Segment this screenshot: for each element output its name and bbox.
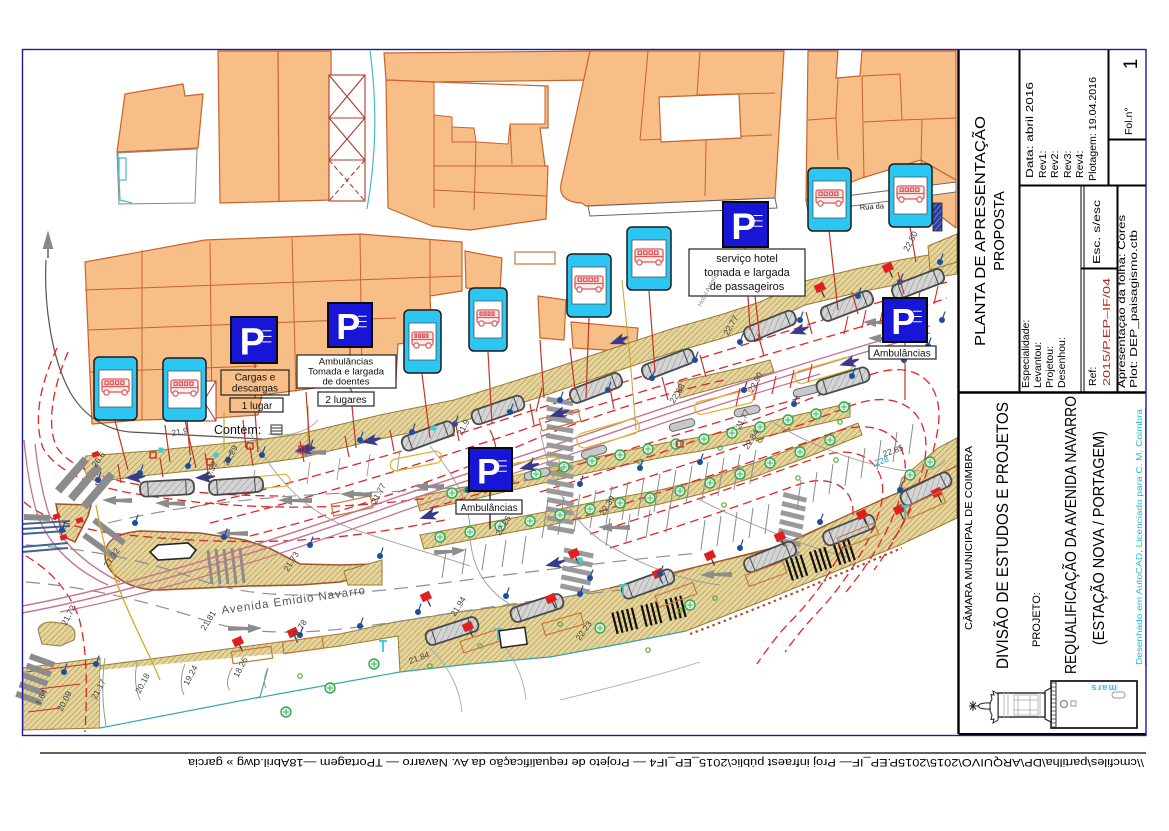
- svg-text:PLANTA DE APRESENTAÇÃO: PLANTA DE APRESENTAÇÃO: [972, 116, 989, 346]
- svg-text:de doentes: de doentes: [322, 377, 369, 388]
- svg-text:Esc. s/esc: Esc. s/esc: [1091, 200, 1103, 264]
- svg-text:Rev2:: Rev2:: [1049, 151, 1061, 178]
- svg-text:22.50: 22.50: [901, 229, 920, 253]
- svg-text:Ambulâncias: Ambulâncias: [460, 503, 517, 514]
- svg-text:Fol.n°: Fol.n°: [1123, 107, 1135, 135]
- svg-text:descargas: descargas: [232, 384, 278, 395]
- svg-text:Especialidade:: Especialidade:: [1020, 320, 1032, 388]
- svg-text:PROJETO:: PROJETO:: [1031, 592, 1043, 647]
- svg-text:1 lugar: 1 lugar: [242, 401, 273, 412]
- svg-text:DIVISÃO DE ESTUDOS E PROJETOS: DIVISÃO DE ESTUDOS E PROJETOS: [993, 402, 1012, 669]
- svg-text:PROPOSTA: PROPOSTA: [992, 191, 1008, 271]
- svg-text:Levantou:: Levantou:: [1032, 342, 1044, 388]
- svg-text:de passageiros: de passageiros: [710, 281, 785, 293]
- svg-text:P: P: [240, 321, 265, 363]
- svg-text:Contem:: Contem:: [214, 423, 261, 437]
- svg-text:Cargas e: Cargas e: [235, 373, 276, 384]
- svg-text:Data: abril 2016: Data: abril 2016: [1024, 82, 1036, 178]
- svg-text:CÂMARA MUNICIPAL DE COIMBRA: CÂMARA MUNICIPAL DE COIMBRA: [962, 446, 975, 630]
- svg-text:Projetou:: Projetou:: [1044, 346, 1056, 388]
- svg-text:P: P: [477, 452, 501, 491]
- svg-text:Rev1:: Rev1:: [1037, 151, 1049, 178]
- svg-text:Rua da: Rua da: [860, 201, 886, 212]
- svg-text:Avenida Emidio Navarro: Avenida Emidio Navarro: [221, 585, 367, 617]
- svg-text:P: P: [891, 301, 915, 342]
- svg-text:REQUALIFICAÇÃO DA AVENIDA NAVA: REQUALIFICAÇÃO DA AVENIDA NAVARRO: [1060, 396, 1080, 674]
- svg-text:Rev3:: Rev3:: [1062, 151, 1074, 178]
- svg-text:Plotagem: 19.04.2016: Plotagem: 19.04.2016: [1088, 77, 1099, 181]
- svg-text:Ref:: Ref:: [1087, 367, 1099, 386]
- svg-text:Desenhado em AutoCAD, Licen: Desenhado em AutoCAD, Licenciado para C.…: [1135, 408, 1144, 665]
- svg-text:P: P: [731, 206, 756, 247]
- svg-text:1: 1: [1121, 59, 1142, 70]
- svg-text:Desenhou:: Desenhou:: [1056, 337, 1068, 388]
- svg-text:21.78: 21.78: [289, 617, 309, 641]
- svg-text:2015/P.EP–IF/04: 2015/P.EP–IF/04: [1101, 278, 1113, 386]
- svg-text:mars: mars: [1090, 682, 1117, 693]
- svg-text:Ambulâncias: Ambulâncias: [873, 349, 930, 360]
- svg-text:21.81: 21.81: [198, 608, 218, 632]
- svg-text:21.9: 21.9: [171, 425, 189, 438]
- svg-text:(ESTAÇÃO NOVA / PORTAGEM): (ESTAÇÃO NOVA / PORTAGEM): [1088, 431, 1108, 645]
- svg-text:\\cmcfiles\partilha\DP\ARQUIVO: \\cmcfiles\partilha\DP\ARQUIVO\2015\2015…: [187, 756, 1144, 768]
- svg-text:Plot: DEP_paisagismo.ctb: Plot: DEP_paisagismo.ctb: [1129, 229, 1140, 388]
- svg-text:P: P: [336, 306, 360, 347]
- svg-text:serviço hotel: serviço hotel: [716, 253, 778, 265]
- svg-text:Apresentação da folha: Core: Apresentação da folha: Cores: [1117, 215, 1128, 388]
- svg-text:2 lugares: 2 lugares: [325, 395, 366, 406]
- svg-text:Rev4:: Rev4:: [1074, 151, 1086, 178]
- svg-text:21.72: 21.72: [59, 603, 78, 627]
